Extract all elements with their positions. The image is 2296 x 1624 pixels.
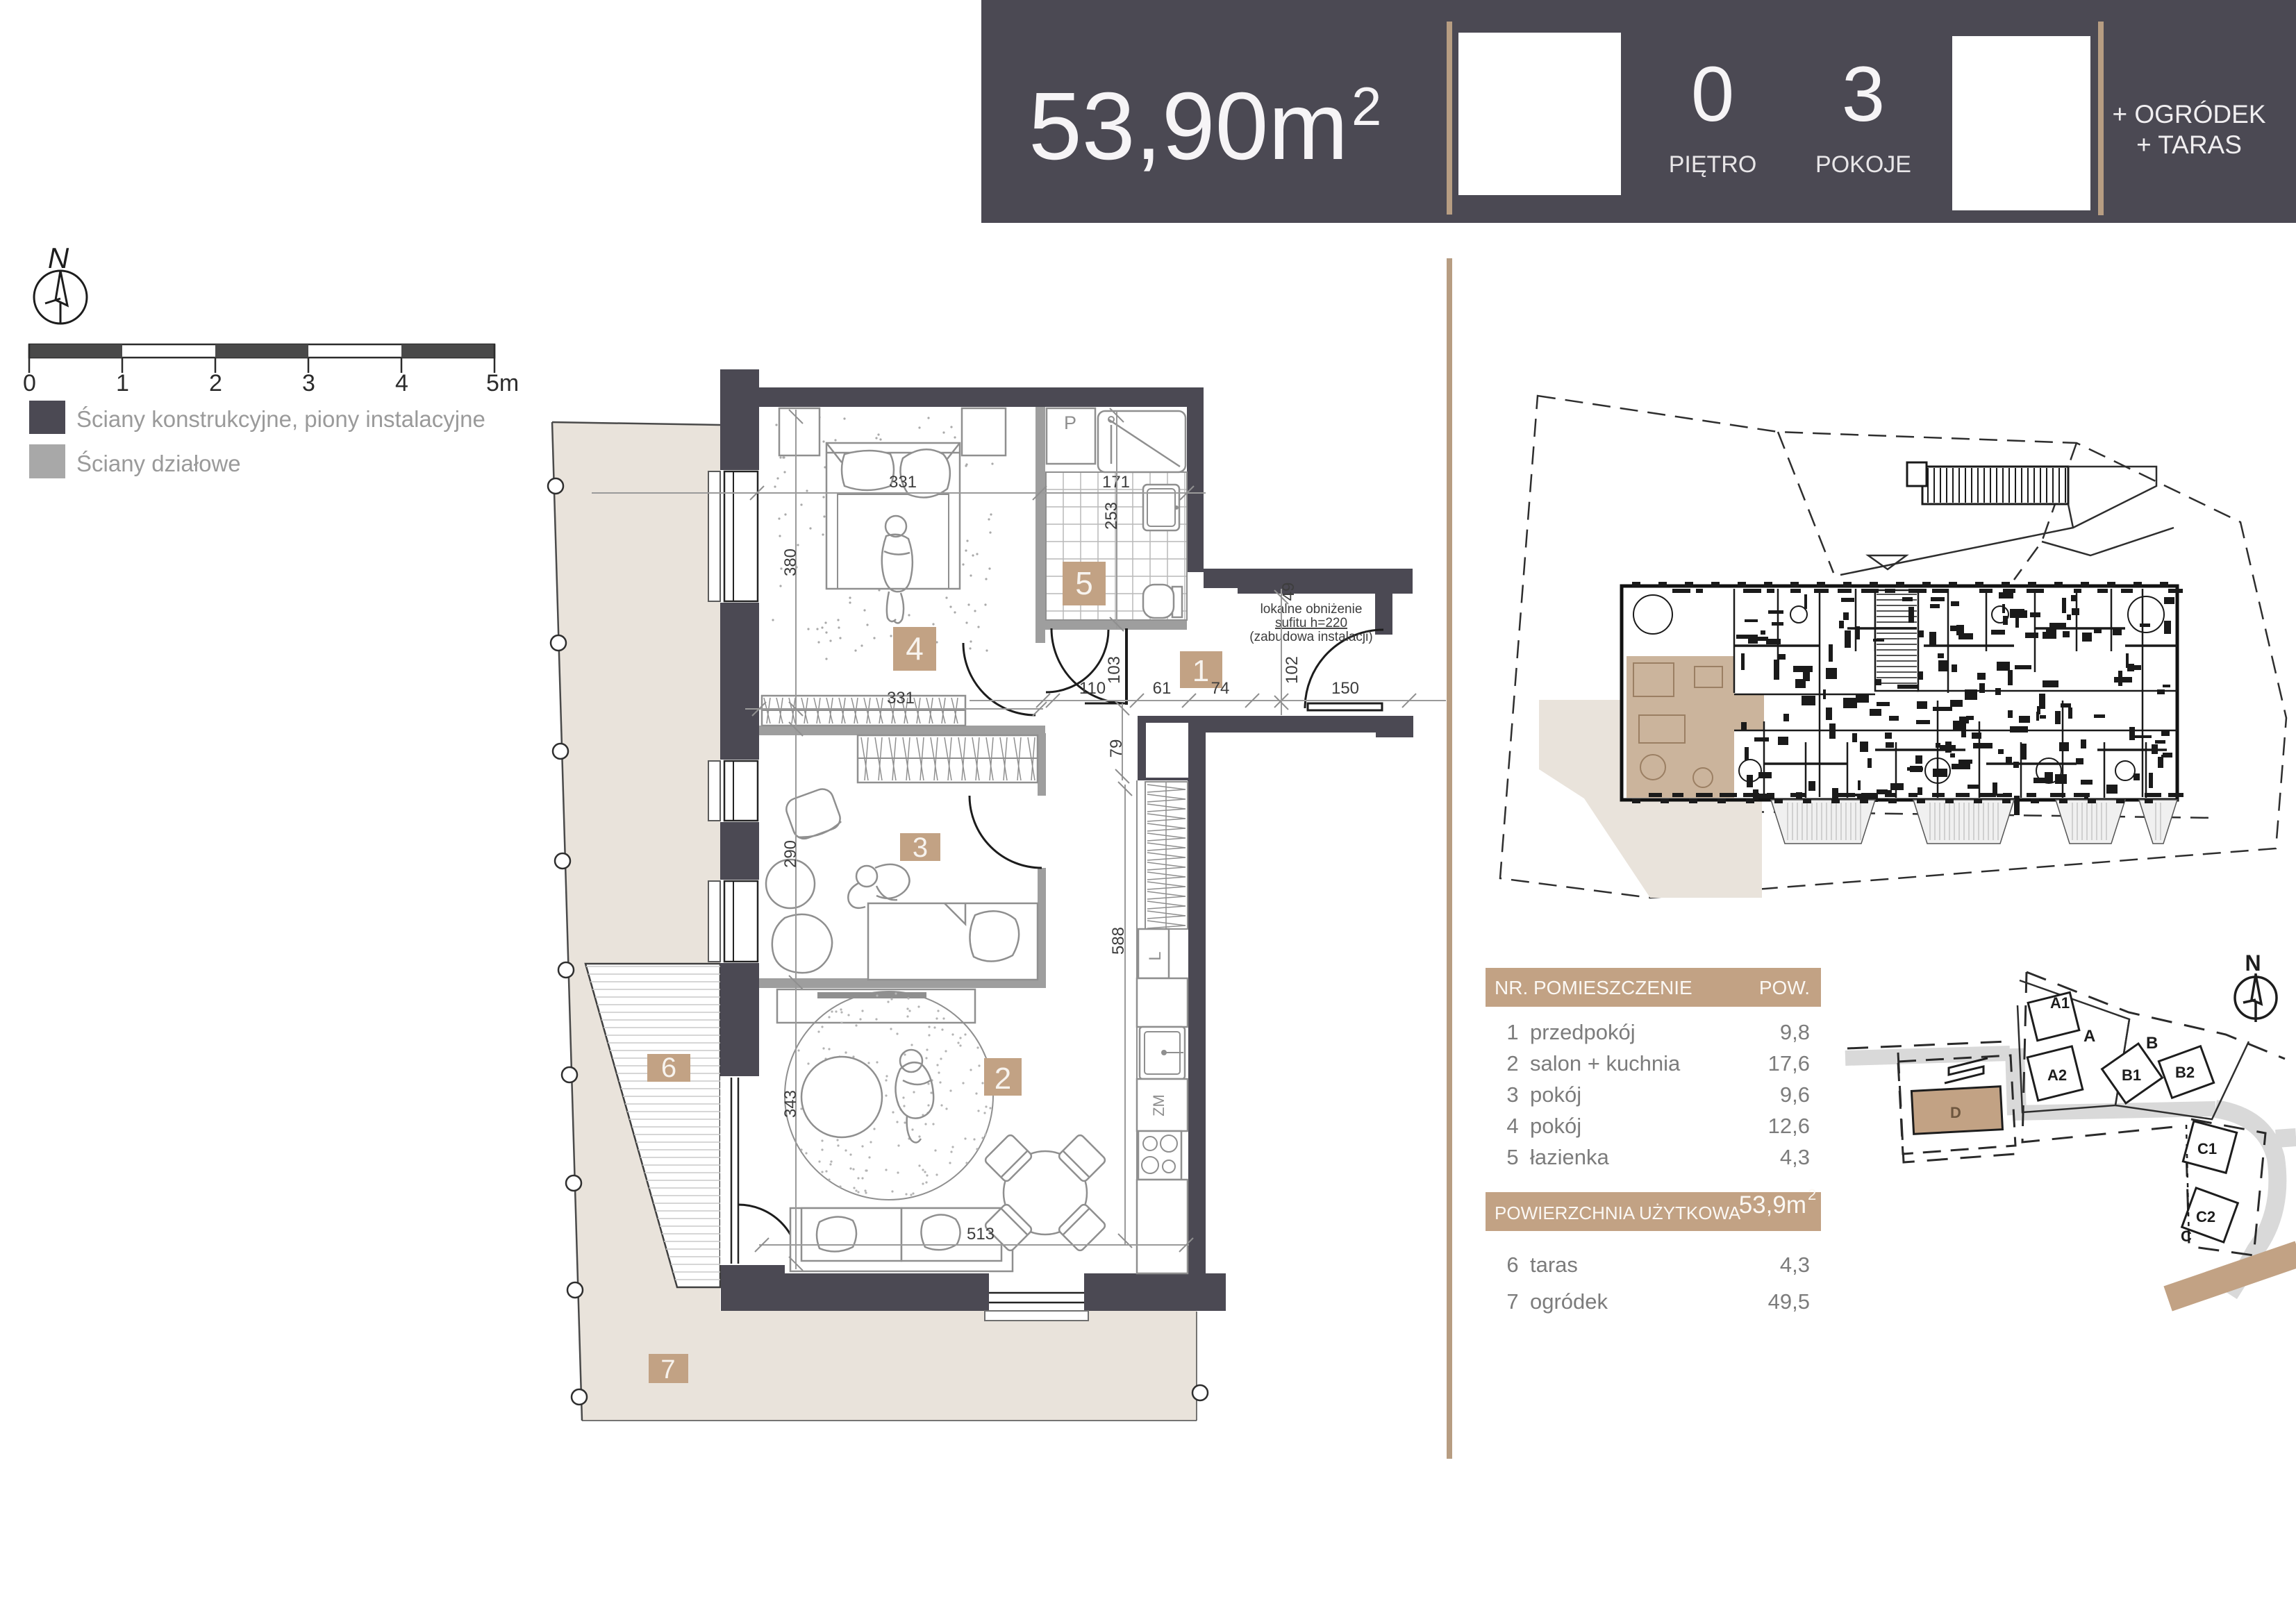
svg-text:5m: 5m bbox=[486, 370, 519, 396]
svg-text:B: B bbox=[2146, 1034, 2158, 1053]
svg-text:C1: C1 bbox=[2197, 1140, 2217, 1157]
svg-text:12,6: 12,6 bbox=[1768, 1114, 1810, 1138]
svg-text:17,6: 17,6 bbox=[1768, 1051, 1810, 1075]
svg-text:B1: B1 bbox=[2122, 1066, 2141, 1084]
svg-text:150: 150 bbox=[1331, 679, 1359, 698]
svg-text:5: 5 bbox=[1075, 565, 1093, 601]
svg-text:D: D bbox=[1950, 1104, 1961, 1121]
svg-text:49: 49 bbox=[1279, 583, 1298, 601]
svg-text:102: 102 bbox=[1283, 656, 1301, 684]
svg-text:3: 3 bbox=[302, 370, 315, 396]
svg-text:5: 5 bbox=[1506, 1145, 1518, 1169]
svg-text:4: 4 bbox=[906, 630, 924, 667]
svg-text:49,5: 49,5 bbox=[1768, 1289, 1810, 1314]
svg-text:Ściany działowe: Ściany działowe bbox=[76, 450, 241, 476]
svg-text:2: 2 bbox=[995, 1062, 1011, 1096]
svg-text:pokój: pokój bbox=[1530, 1082, 1581, 1107]
svg-text:588: 588 bbox=[1109, 927, 1128, 955]
svg-text:4: 4 bbox=[395, 370, 408, 396]
svg-text:A1: A1 bbox=[2050, 994, 2070, 1012]
svg-text:N: N bbox=[2245, 951, 2261, 976]
svg-text:PIĘTRO: PIĘTRO bbox=[1669, 151, 1757, 178]
svg-text:1: 1 bbox=[116, 370, 129, 396]
svg-text:103: 103 bbox=[1105, 656, 1124, 684]
svg-text:74: 74 bbox=[1211, 679, 1230, 698]
svg-text:POKOJE: POKOJE bbox=[1815, 151, 1911, 178]
svg-text:ZM: ZM bbox=[1150, 1094, 1167, 1116]
svg-text:P: P bbox=[1064, 412, 1076, 433]
svg-text:253: 253 bbox=[1102, 502, 1121, 530]
svg-text:pokój: pokój bbox=[1530, 1114, 1581, 1138]
svg-text:A: A bbox=[2083, 1027, 2095, 1046]
svg-text:4,3: 4,3 bbox=[1780, 1253, 1810, 1277]
svg-text:3: 3 bbox=[1506, 1082, 1518, 1107]
svg-text:1: 1 bbox=[1506, 1020, 1518, 1044]
svg-text:przedpokój: przedpokój bbox=[1530, 1020, 1636, 1044]
svg-text:6: 6 bbox=[1506, 1253, 1518, 1277]
svg-text:2: 2 bbox=[209, 370, 222, 396]
svg-text:+ TARAS: + TARAS bbox=[2136, 131, 2242, 159]
svg-text:0: 0 bbox=[23, 370, 36, 396]
svg-text:9,8: 9,8 bbox=[1780, 1020, 1810, 1044]
svg-text:łazienka: łazienka bbox=[1530, 1145, 1609, 1169]
svg-text:4: 4 bbox=[1506, 1114, 1518, 1138]
svg-text:C: C bbox=[2181, 1228, 2192, 1245]
svg-text:POW.: POW. bbox=[1759, 977, 1810, 998]
svg-text:110: 110 bbox=[1079, 679, 1106, 698]
svg-text:POWIERZCHNIA UŻYTKOWA: POWIERZCHNIA UŻYTKOWA bbox=[1495, 1203, 1741, 1223]
svg-text:ogródek: ogródek bbox=[1530, 1289, 1608, 1314]
svg-text:7: 7 bbox=[1506, 1289, 1518, 1314]
svg-text:4,3: 4,3 bbox=[1780, 1145, 1810, 1169]
svg-text:2: 2 bbox=[1808, 1186, 1816, 1203]
svg-text:343: 343 bbox=[781, 1090, 800, 1118]
svg-text:7: 7 bbox=[660, 1355, 675, 1384]
svg-text:2: 2 bbox=[1506, 1051, 1518, 1075]
svg-text:53,9m: 53,9m bbox=[1739, 1191, 1806, 1219]
svg-text:61: 61 bbox=[1153, 679, 1172, 698]
svg-text:L: L bbox=[1146, 951, 1165, 960]
svg-text:53,90m: 53,90m bbox=[1029, 73, 1348, 180]
svg-text:taras: taras bbox=[1530, 1253, 1578, 1277]
svg-text:salon + kuchnia: salon + kuchnia bbox=[1530, 1051, 1681, 1075]
svg-text:1: 1 bbox=[1192, 654, 1209, 688]
svg-text:lokalne obniżenie: lokalne obniżenie bbox=[1261, 602, 1363, 617]
svg-text:331: 331 bbox=[887, 689, 915, 708]
svg-text:+ OGRÓDEK: + OGRÓDEK bbox=[2112, 100, 2265, 128]
svg-text:380: 380 bbox=[781, 549, 800, 576]
svg-text:B2: B2 bbox=[2175, 1064, 2195, 1081]
svg-text:C2: C2 bbox=[2196, 1208, 2215, 1225]
svg-text:3: 3 bbox=[1842, 51, 1885, 137]
svg-text:513: 513 bbox=[967, 1225, 995, 1244]
svg-text:A2: A2 bbox=[2047, 1066, 2067, 1084]
svg-text:3: 3 bbox=[913, 832, 928, 863]
svg-text:9,6: 9,6 bbox=[1780, 1082, 1810, 1107]
svg-text:0: 0 bbox=[1691, 51, 1734, 137]
svg-text:331: 331 bbox=[889, 473, 917, 492]
svg-text:NR. POMIESZCZENIE: NR. POMIESZCZENIE bbox=[1495, 977, 1692, 998]
svg-text:290: 290 bbox=[781, 840, 800, 868]
svg-text:N: N bbox=[48, 242, 69, 274]
svg-text:79: 79 bbox=[1107, 739, 1126, 758]
svg-text:Ściany konstrukcyjne, piony in: Ściany konstrukcyjne, piony instalacyjne bbox=[76, 405, 485, 432]
svg-text:6: 6 bbox=[661, 1053, 676, 1083]
svg-text:sufitu h=220: sufitu h=220 bbox=[1275, 616, 1347, 630]
svg-text:(zabudowa instalacji): (zabudowa instalacji) bbox=[1249, 630, 1372, 644]
svg-text:2: 2 bbox=[1351, 76, 1381, 137]
